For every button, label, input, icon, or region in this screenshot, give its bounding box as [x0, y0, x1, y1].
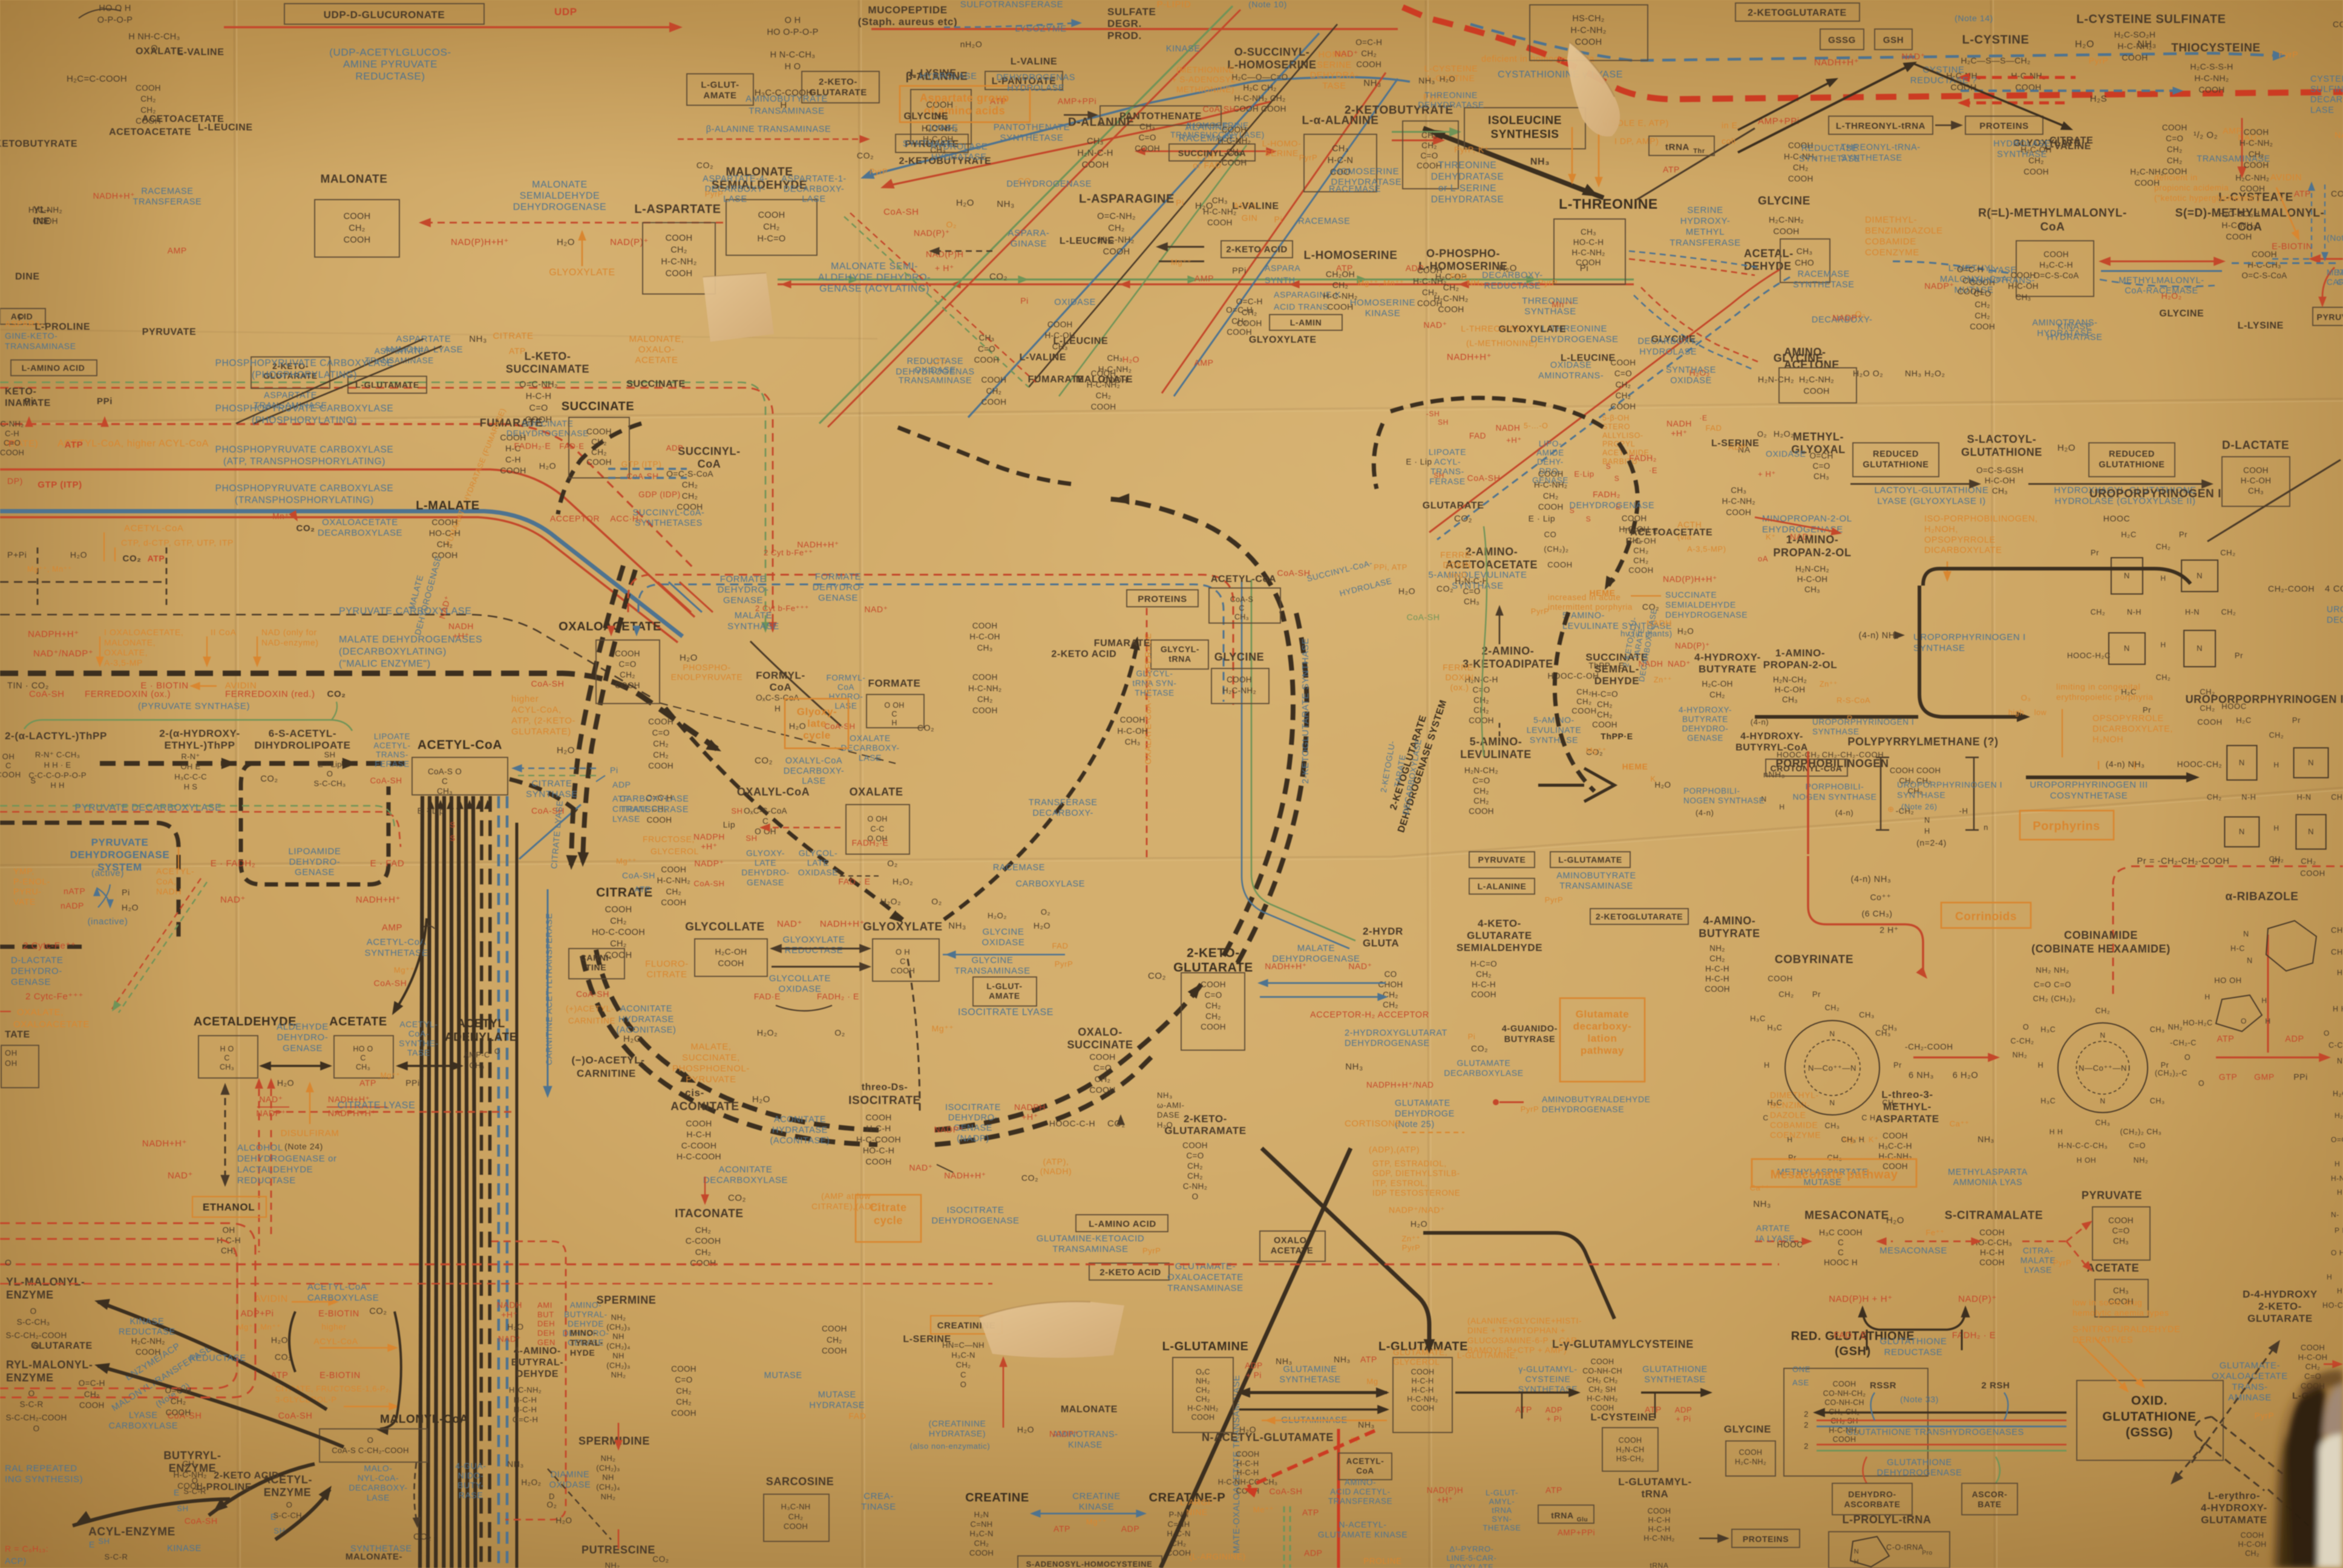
svg-text:OXALATE: OXALATE: [136, 46, 183, 56]
svg-text:H₂O: H₂O: [1440, 74, 1455, 83]
svg-text:NAD⁺: NAD⁺: [1668, 659, 1691, 668]
svg-text:ASPARA-GINASE: ASPARA-GINASE: [1008, 228, 1050, 249]
svg-text:H₂O: H₂O: [623, 1034, 641, 1044]
svg-text:H₂C: H₂C: [2121, 530, 2137, 539]
svg-text:H₂O: H₂O: [1017, 1425, 1034, 1434]
svg-text:O: O: [2324, 1029, 2330, 1037]
svg-text:2 Cytc-Fe⁺⁺: 2 Cytc-Fe⁺⁺: [23, 941, 76, 951]
svg-text:NH₂: NH₂: [2168, 1023, 2183, 1031]
svg-text:SH: SH: [731, 806, 742, 815]
svg-text:+ H⁺: + H⁺: [935, 263, 954, 273]
svg-text:higher: higher: [321, 1322, 346, 1331]
svg-text:ATP: ATP: [148, 554, 165, 563]
svg-text:ADP+ Pi: ADP+ Pi: [1675, 1405, 1693, 1423]
svg-text:Pr: Pr: [2143, 705, 2151, 714]
svg-text:DECARBOXY-HYDROLASE: DECARBOXY-HYDROLASE: [1637, 336, 1699, 356]
svg-text:CITRATE: CITRATE: [493, 331, 533, 341]
svg-text:H₃C: H₃C: [1768, 1099, 1783, 1107]
svg-text:limiting in congenitalerythrop: limiting in congenitalerythropoietic por…: [2056, 682, 2154, 702]
svg-text:Mg: Mg: [1366, 1377, 1378, 1386]
svg-text:COOH: COOH: [2300, 869, 2325, 878]
svg-text:CH₃: CH₃: [2331, 926, 2343, 935]
svg-text:RACEMASESYNTHETASE: RACEMASESYNTHETASE: [1793, 270, 1855, 290]
svg-text:S: S: [30, 776, 36, 785]
svg-text:(4-n): (4-n): [1696, 808, 1714, 817]
svg-text:2: 2: [1804, 1420, 1809, 1429]
svg-text:DEHYDROGENASHYDROLASE: DEHYDROGENASHYDROLASE: [997, 73, 1075, 93]
svg-text:6-S-ACETYL-DIHYDROLIPOATE: 6-S-ACETYL-DIHYDROLIPOATE: [254, 728, 350, 751]
svg-text:NADP⁺: NADP⁺: [1832, 313, 1862, 322]
svg-text:CH₃: CH₃: [1883, 1099, 1898, 1107]
svg-text:cis-: cis-: [685, 1087, 704, 1099]
svg-text:RACEMASE: RACEMASE: [1298, 217, 1350, 226]
svg-text:-CH₂-COOH: -CH₂-COOH: [1905, 1042, 1953, 1051]
svg-text:Pi: Pi: [122, 887, 130, 897]
svg-text:CH₂: CH₂: [2156, 673, 2171, 682]
svg-text:NH₃: NH₃: [469, 334, 487, 344]
svg-text:L-ALANINE: L-ALANINE: [1478, 881, 1527, 891]
svg-text:THREONINEDEHYDRATASE: THREONINEDEHYDRATASE: [1418, 90, 1484, 109]
svg-text:FAD: FAD: [1705, 423, 1722, 433]
svg-text:RACEMASE: RACEMASE: [1329, 185, 1381, 194]
svg-text:H₂O: H₂O: [2057, 443, 2076, 453]
svg-text:(CREATININEHYDRATASE): (CREATININEHYDRATASE): [928, 1419, 986, 1439]
svg-text:high: high: [2008, 708, 2024, 717]
svg-text:oA: oA: [1758, 554, 1768, 563]
svg-text:CO₂: CO₂: [755, 756, 773, 766]
svg-text:METHYLASPARTAAMMONIA LYAS: METHYLASPARTAAMMONIA LYAS: [1948, 1168, 2028, 1187]
svg-text:GLYOXYLATE: GLYOXYLATE: [1249, 335, 1317, 345]
svg-text:CO₂: CO₂: [297, 523, 315, 534]
svg-text:S-ADENOSYL-HOMOCYSTEINE: S-ADENOSYL-HOMOCYSTEINE: [1026, 1560, 1153, 1568]
svg-text:tRNA: tRNA: [1665, 142, 1689, 152]
svg-text:MALONYL-CoA: MALONYL-CoA: [380, 1413, 468, 1426]
svg-text:CREATINE: CREATINE: [965, 1491, 1029, 1504]
svg-text:Mg⁺⁺,Mn⁺⁺: Mg⁺⁺,Mn⁺⁺: [237, 1322, 281, 1331]
svg-text:CoA-SH: CoA-SH: [1407, 612, 1440, 622]
svg-text:FUMARATE: FUMARATE: [1094, 638, 1150, 648]
svg-text:L-GLUTAMATE: L-GLUTAMATE: [355, 380, 419, 390]
svg-text:FORMATEDEHYDRO-GENASE: FORMATEDEHYDRO-GENASE: [813, 572, 864, 603]
svg-text:ATP: ATP: [2217, 1034, 2235, 1044]
svg-text:CARNITINE: CARNITINE: [568, 1016, 615, 1025]
svg-text:H H₂C: H H₂C: [2333, 1005, 2343, 1013]
svg-text:(CH₂)₂-C: (CH₂)₂-C: [2155, 1069, 2187, 1077]
svg-text:FRUCTOSE,: FRUCTOSE,: [643, 834, 695, 844]
svg-text:(Note 24): (Note 24): [284, 1142, 323, 1151]
svg-text:L-AMINO ACID: L-AMINO ACID: [22, 363, 85, 373]
svg-text:NAD(P)H+H⁺: NAD(P)H+H⁺: [451, 237, 509, 247]
svg-text:ACONITATE: ACONITATE: [670, 1100, 739, 1113]
svg-text:NH₂ NH₂: NH₂ NH₂: [2036, 965, 2069, 975]
svg-text:LIPOAMIDEDEHYDRO-GENASE: LIPOAMIDEDEHYDRO-GENASE: [288, 846, 341, 878]
svg-text:SH: SH: [1438, 418, 1449, 426]
svg-text:-H: -H: [1959, 806, 1968, 815]
svg-text:SARCOSINE: SARCOSINE: [766, 1475, 834, 1488]
svg-text:2-KETOGLUTARATE SYNTHASE: 2-KETOGLUTARATE SYNTHASE: [1300, 638, 1311, 783]
svg-text:PYRUVATE: PYRUVATE: [1478, 855, 1526, 864]
svg-text:CO₂: CO₂: [369, 1307, 387, 1316]
svg-text:Zn⁺⁺: Zn⁺⁺: [1820, 680, 1838, 688]
svg-text:2 Cyt b-Fe⁺⁺: 2 Cyt b-Fe⁺⁺: [764, 548, 813, 557]
svg-text:Corrinoids: Corrinoids: [1955, 910, 2017, 923]
svg-text:NADH+H⁺: NADH+H⁺: [142, 1138, 187, 1149]
svg-text:OXALOACETATEDECARBOXYLASE: OXALOACETATEDECARBOXYLASE: [318, 517, 402, 538]
svg-text:in E.: in E.: [1722, 120, 1740, 130]
svg-text:KINASE: KINASE: [167, 1544, 202, 1553]
svg-text:COOH: COOH: [2197, 717, 2222, 727]
svg-text:2 RSH: 2 RSH: [1981, 1380, 2010, 1391]
svg-text:ATP: ATP: [634, 884, 651, 894]
svg-text:HEME: HEME: [1622, 762, 1648, 771]
svg-text:SYNTHASEOXIDASE: SYNTHASEOXIDASE: [1666, 365, 1716, 385]
svg-text:NADH+H⁺: NADH+H⁺: [356, 895, 401, 905]
svg-text:UDP: UDP: [554, 6, 577, 18]
svg-text:-CH₂-C: -CH₂-C: [2170, 1039, 2197, 1047]
svg-text:CROTONYL-CoA: CROTONYL-CoA: [1771, 763, 1843, 773]
svg-text:GLUTATHIONEDEHYDROGENASE: GLUTATHIONEDEHYDROGENASE: [1877, 1458, 1962, 1478]
svg-text:FAD: FAD: [1052, 941, 1068, 950]
svg-text:Pr: Pr: [2179, 530, 2187, 539]
svg-text:NAD⁺: NAD⁺: [909, 1163, 932, 1172]
svg-text:ISOLEUCINESYNTHESIS: ISOLEUCINESYNTHESIS: [1488, 114, 1562, 141]
svg-text:L-LEUCINE: L-LEUCINE: [1561, 353, 1616, 363]
svg-text:(n=2-4): (n=2-4): [1916, 838, 1947, 848]
svg-text:GLUTAMATE-OXALOACETATETRANSAMI: GLUTAMATE-OXALOACETATETRANSAMINASE: [1167, 1261, 1244, 1293]
svg-text:N—Co⁺⁺—N: N—Co⁺⁺—N: [1808, 1063, 1856, 1073]
svg-text:Fe⁺⁺: Fe⁺⁺: [1925, 1228, 1944, 1237]
svg-text:CH₃: CH₃: [1825, 1122, 1840, 1130]
svg-text:REDUCTASE: REDUCTASE: [189, 1353, 246, 1363]
svg-text:FORMATE: FORMATE: [868, 678, 921, 689]
svg-text:NADPH+H⁺: NADPH+H⁺: [28, 629, 79, 639]
svg-text:ADP+ Pi: ADP+ Pi: [1245, 1361, 1263, 1380]
svg-text:Pi: Pi: [1274, 214, 1283, 224]
svg-text:(Note 33): (Note 33): [1900, 1394, 1939, 1404]
svg-text:O: O: [2184, 1053, 2191, 1062]
svg-text:L-VALINE: L-VALINE: [177, 47, 224, 57]
svg-text:DEHYDRO-ASCORBATE: DEHYDRO-ASCORBATE: [1844, 1489, 1900, 1509]
svg-text:N: N: [2197, 571, 2203, 580]
svg-text:KINASE: KINASE: [1166, 44, 1201, 54]
svg-text:(ATP),(NADH): (ATP),(NADH): [1040, 1157, 1072, 1176]
svg-text:E·Lip: E·Lip: [1574, 469, 1594, 479]
svg-text:4-GUA-NIDO-BUTY-RASE: 4-GUA-NIDO-BUTY-RASE: [455, 1461, 486, 1500]
svg-text:CH₃: CH₃: [1859, 1010, 1875, 1019]
svg-text:H₂C: H₂C: [2236, 716, 2252, 725]
svg-text:GLYCOLLATE: GLYCOLLATE: [685, 921, 765, 933]
svg-text:(Note 15): (Note 15): [2327, 233, 2343, 243]
svg-text:RSSR: RSSR: [1870, 1380, 1896, 1391]
svg-text:PyrP: PyrP: [2255, 1411, 2275, 1420]
svg-text:A-3,5-MP): A-3,5-MP): [1687, 544, 1726, 554]
svg-text:C-O-tRNA: C-O-tRNA: [1886, 1543, 1924, 1552]
svg-text:ISOCITRATE LYASE: ISOCITRATE LYASE: [958, 1007, 1054, 1018]
svg-text:E · FADH₂: E · FADH₂: [211, 858, 256, 869]
svg-text:(+)ACETYL-: (+)ACETYL-: [566, 1004, 614, 1013]
svg-text:Me⁺⁺: Me⁺⁺: [1253, 1505, 1274, 1514]
svg-text:H₂O: H₂O: [1654, 780, 1671, 789]
svg-text:H₃C: H₃C: [1750, 1014, 1766, 1023]
svg-text:PYRUVATE: PYRUVATE: [2082, 1189, 2142, 1201]
svg-text:L-PROLINE: L-PROLINE: [196, 1482, 252, 1492]
svg-text:CoA-SH: CoA-SH: [374, 978, 407, 988]
svg-text:NH₃: NH₃: [1363, 78, 1381, 88]
svg-text:L-PROLINE: L-PROLINE: [35, 322, 91, 332]
svg-text:HOOC: HOOC: [2221, 702, 2246, 711]
svg-text:PyrP: PyrP: [1531, 607, 1550, 616]
svg-text:PyrP: PyrP: [1545, 895, 1564, 904]
svg-text:O: O: [5, 1258, 12, 1267]
svg-text:CH₃: CH₃: [2150, 1097, 2165, 1105]
svg-text:COOH: COOH: [1547, 560, 1572, 569]
svg-text:N: N: [2308, 758, 2314, 767]
svg-text:2: 2: [1804, 1442, 1809, 1451]
svg-text:(4-n) NH₃: (4-n) NH₃: [2106, 759, 2145, 769]
svg-text:CoA-SH: CoA-SH: [531, 679, 565, 688]
svg-text:H H: H H: [2335, 1160, 2343, 1168]
svg-text:HO-H₂C: HO-H₂C: [2183, 1019, 2212, 1027]
svg-text:AMP: AMP: [1194, 358, 1213, 367]
svg-text:N: N: [2308, 827, 2314, 836]
svg-text:CoA-SH: CoA-SH: [1467, 473, 1501, 483]
svg-text:Zn⁺⁺PyrP: Zn⁺⁺PyrP: [1401, 1234, 1420, 1252]
svg-text:L-VALINE: L-VALINE: [1232, 201, 1279, 211]
svg-text:2 Cytc-Fe⁺⁺⁺: 2 Cytc-Fe⁺⁺⁺: [25, 991, 84, 1002]
svg-text:ATP: ATP: [359, 1078, 376, 1088]
svg-text:AMP: AMP: [168, 246, 187, 255]
svg-text:CH₂: CH₂: [1825, 1004, 1840, 1012]
svg-text:SUCCINATE: SUCCINATE: [562, 400, 635, 413]
svg-text:GTP: GTP: [2219, 1072, 2238, 1082]
svg-text:FERREDOXIN (ox.): FERREDOXIN (ox.): [85, 689, 171, 699]
svg-text:CO₂: CO₂: [1471, 1044, 1488, 1053]
svg-text:GLUTAMINESYNTHETASE: GLUTAMINESYNTHETASE: [1279, 1365, 1341, 1385]
svg-text:MALONATE: MALONATE: [1061, 1405, 1118, 1415]
svg-text:PyrP, K⁺: PyrP, K⁺: [1454, 145, 1489, 154]
svg-text:ThPP·E: ThPP·E: [1601, 731, 1633, 741]
svg-text:CH₂: CH₂: [2207, 793, 2222, 802]
svg-text:H₂C=C-COOH: H₂C=C-COOH: [67, 74, 127, 84]
svg-text:S: S: [1586, 515, 1591, 523]
svg-text:Ca⁺⁺: Ca⁺⁺: [1750, 1183, 1770, 1192]
svg-text:CoA-SH: CoA-SH: [1203, 104, 1236, 114]
svg-text:E · Lip: E · Lip: [418, 806, 445, 815]
svg-text:CoA-SH: CoA-SH: [622, 871, 655, 880]
svg-text:2-(α-LACTYL-)ThPP: 2-(α-LACTYL-)ThPP: [5, 730, 107, 742]
svg-text:MALATESYNTHASE: MALATESYNTHASE: [727, 610, 779, 632]
svg-text:5-…-O: 5-…-O: [1524, 422, 1548, 430]
svg-text:HYDROLASEHYDRATASE: HYDROLASEHYDRATASE: [930, 142, 988, 162]
svg-text:ADP: ADP: [1121, 1524, 1140, 1534]
svg-text:GLUTAMATE,GLYCEROL: GLUTAMATE,GLYCEROL: [1393, 1348, 1447, 1367]
svg-text:C=O C=O: C=O C=O: [2034, 980, 2071, 989]
svg-text:GTP (ITP): GTP (ITP): [38, 480, 82, 490]
svg-text:CO: CO: [2331, 189, 2343, 198]
svg-text:DISULFIRAM: DISULFIRAM: [281, 1128, 339, 1138]
svg-text:CH₂: CH₂: [2331, 793, 2343, 802]
svg-text:CITRA-MALATELYASE: CITRA-MALATELYASE: [2020, 1246, 2056, 1275]
svg-text:NADPH+H⁺/NAD: NADPH+H⁺/NAD: [1366, 1080, 1434, 1089]
svg-text:H₃C: H₃C: [2337, 969, 2343, 977]
svg-text:H₂O: H₂O: [271, 1335, 288, 1345]
svg-text:COOHH₂N-CHHS-CH₂: COOHH₂N-CHHS-CH₂: [1616, 1436, 1645, 1463]
svg-text:L-THREONYL-tRNA: L-THREONYL-tRNA: [1836, 121, 1925, 131]
svg-text:H₃C: H₃C: [2040, 1025, 2056, 1034]
svg-text:H₂O: H₂O: [555, 1516, 572, 1525]
svg-text:(Note 10): (Note 10): [1248, 0, 1287, 9]
svg-text:Pi: Pi: [1020, 296, 1029, 305]
svg-text:Citratecycle: Citratecycle: [870, 1201, 906, 1227]
svg-text:NADP⁺: NADP⁺: [1049, 1429, 1079, 1439]
svg-text:P-LIPID: P-LIPID: [1157, 0, 1191, 10]
svg-text:HYDROLASE: HYDROLASE: [920, 72, 977, 82]
svg-text:FAD·E: FAD·E: [559, 442, 584, 451]
svg-text:I DP, AMP): I DP, AMP): [1614, 136, 1659, 146]
svg-text:OXALATE-CoA-TRANSFERASE: OXALATE-CoA-TRANSFERASE: [1143, 633, 1153, 764]
svg-text:L-CYSTINE: L-CYSTINE: [1962, 33, 2030, 47]
svg-text:R = C₆H₁₃:: R = C₆H₁₃:: [5, 1544, 48, 1553]
svg-text:H₃C: H₃C: [1768, 1024, 1783, 1032]
svg-text:NH₃: NH₃: [1358, 1420, 1375, 1429]
svg-text:NADH+H⁺: NADH+H⁺: [797, 540, 839, 549]
svg-text:OXIDASE: OXIDASE: [1766, 449, 1806, 459]
svg-text:OXALYL-CoA: OXALYL-CoA: [737, 786, 810, 798]
svg-text:Thr: Thr: [1693, 148, 1705, 155]
svg-text:ASPARA: ASPARA: [1265, 263, 1300, 273]
svg-text:CH₃: CH₃: [2096, 1119, 2111, 1127]
svg-text:O: O: [2241, 1017, 2247, 1025]
svg-text:SPERMIDINE: SPERMIDINE: [578, 1435, 650, 1447]
svg-text:H₂O₂: H₂O₂: [2161, 291, 2182, 301]
svg-text:GLYCINE: GLYCINE: [1774, 352, 1824, 364]
svg-text:(CH₂)₂ CH₃: (CH₂)₂ CH₃: [2120, 1128, 2162, 1136]
svg-text:CO₂: CO₂: [327, 689, 346, 699]
svg-text:L-SERINE: L-SERINE: [903, 1334, 951, 1345]
svg-text:MALONATE: MALONATE: [320, 173, 387, 186]
svg-text:PROTEINS: PROTEINS: [1743, 1534, 1789, 1544]
svg-text:GLUTATHIONESYNTHETASE: GLUTATHIONESYNTHETASE: [1642, 1365, 1708, 1385]
svg-text:5-AMINO-LEVULINATESYNTHASE: 5-AMINO-LEVULINATESYNTHASE: [1527, 715, 1582, 745]
svg-text:H₂N-CH₂: H₂N-CH₂: [1758, 374, 1794, 384]
svg-text:CO₂: CO₂: [696, 160, 713, 170]
svg-text:NAD⁺: NAD⁺: [864, 604, 888, 614]
svg-text:PYRUVATE: PYRUVATE: [2317, 312, 2343, 322]
svg-text:GLYCINE: GLYCINE: [1758, 195, 1810, 207]
svg-text:H: H: [2265, 1017, 2270, 1025]
svg-text:L-THREONINE: L-THREONINE: [1559, 196, 1658, 212]
svg-text:2-KETOGLUTARATE: 2-KETOGLUTARATE: [1748, 8, 1847, 18]
svg-text:H₂O: H₂O: [70, 550, 87, 560]
svg-text:ATP: ATP: [1054, 1524, 1070, 1534]
svg-text:TATE: TATE: [5, 1030, 30, 1040]
svg-text:O₂: O₂: [1041, 907, 1050, 916]
svg-text:CoA-SH: CoA-SH: [1270, 1486, 1303, 1496]
svg-text:ASE: ASE: [1792, 1378, 1809, 1387]
svg-text:NADP⁺: NADP⁺: [694, 858, 724, 868]
svg-text:L-erythro-4-HYDROXY-GLUTAMATE: L-erythro-4-HYDROXY-GLUTAMATE: [2201, 1490, 2267, 1526]
svg-text:SPERMINE: SPERMINE: [597, 1294, 657, 1306]
svg-text:RAL REPEATEDING SYNTHESIS): RAL REPEATEDING SYNTHESIS): [5, 1463, 83, 1485]
svg-text:L-PROLYL-tRNA: L-PROLYL-tRNA: [1842, 1514, 1931, 1526]
svg-text:NAD(P)⁺: NAD(P)⁺: [914, 228, 950, 238]
svg-text:2-KETO ACID: 2-KETO ACID: [1226, 244, 1288, 255]
svg-text:GDP (IDP): GDP (IDP): [638, 490, 681, 499]
svg-text:NH₃: NH₃: [997, 199, 1015, 209]
svg-text:n: n: [1984, 823, 1988, 832]
svg-text:GLYCEROL: GLYCEROL: [650, 846, 699, 856]
svg-text:FAD: FAD: [1450, 272, 1467, 281]
svg-text:2-KETO ACID: 2-KETO ACID: [214, 1471, 279, 1481]
svg-text:CO₂: CO₂: [1148, 971, 1166, 981]
svg-text:ACETATE: ACETATE: [2087, 1262, 2140, 1274]
svg-text:LIPOATEACETYL-TRANS-FERASE: LIPOATEACETYL-TRANS-FERASE: [373, 732, 410, 768]
svg-text:Pr: Pr: [2161, 1061, 2169, 1070]
svg-text:FERREDOXIN (red.): FERREDOXIN (red.): [225, 689, 315, 699]
svg-text:nADP: nADP: [61, 901, 84, 910]
svg-text:ACP): ACP): [5, 1556, 27, 1566]
svg-text:PyrP: PyrP: [1521, 1105, 1539, 1114]
svg-text:E-BIOTIN: E-BIOTIN: [318, 1309, 359, 1319]
svg-text:HOOC-H₂C: HOOC-H₂C: [2067, 651, 2111, 660]
svg-text:CO₂: CO₂: [989, 272, 1008, 282]
svg-text:SYNTHETASE: SYNTHETASE: [350, 1544, 412, 1553]
svg-text:NH₃: NH₃: [1276, 1356, 1293, 1366]
svg-text:ACETOACETATE: ACETOACETATE: [109, 127, 191, 137]
svg-text:H₂C H₃C C: H₂C H₃C C: [2335, 1111, 2343, 1120]
svg-text:NADP⁺/NAD⁺: NADP⁺/NAD⁺: [1389, 1205, 1445, 1215]
svg-text:K⁺: K⁺: [1766, 532, 1776, 541]
svg-text:UROPORPYRINOGEN I: UROPORPYRINOGEN I: [2089, 488, 2221, 500]
svg-text:H₂O₂: H₂O₂: [1774, 429, 1794, 439]
svg-text:Ca⁺⁺: Ca⁺⁺: [1950, 1119, 1970, 1128]
svg-text:L-CYSTEINE: L-CYSTEINE: [1590, 1411, 1655, 1423]
svg-text:PPi: PPi: [97, 396, 113, 407]
svg-text:H: H: [1924, 827, 1930, 835]
svg-text:NAD⁺: NAD⁺: [777, 919, 802, 929]
svg-text:HOOC: HOOC: [2103, 514, 2130, 523]
svg-text:Mg⁺⁺, Mn⁺⁺: Mg⁺⁺, Mn⁺⁺: [1358, 278, 1404, 287]
svg-text:TRANSAMINASE: TRANSAMINASE: [749, 106, 825, 116]
svg-text:N: N: [2124, 571, 2130, 580]
svg-text:CARNITINE: CARNITINE: [577, 1068, 636, 1079]
svg-text:ThPP · E: ThPP · E: [1588, 661, 1624, 670]
svg-text:GIN: GIN: [1242, 213, 1258, 223]
svg-text:NAD⁺: NAD⁺: [498, 1334, 521, 1344]
svg-text:GLYCINE: GLYCINE: [1214, 651, 1265, 663]
svg-text:H: H: [2261, 996, 2267, 1005]
svg-text:PyrP: PyrP: [705, 189, 724, 198]
svg-text:L-LEUCINE: L-LEUCINE: [198, 123, 253, 133]
svg-text:NH₃ H₂O₂: NH₃ H₂O₂: [1905, 368, 1945, 378]
svg-text:Porphyrins: Porphyrins: [2033, 820, 2100, 833]
svg-text:D-LACTATE: D-LACTATE: [2222, 439, 2289, 452]
svg-text:N: N: [2100, 1031, 2105, 1040]
svg-text:5-AMINO-LEVULINATE: 5-AMINO-LEVULINATE: [1460, 736, 1532, 760]
svg-text:HOOC: HOOC: [1777, 1240, 1803, 1249]
svg-text:TRANSFERASEDECARBOXY-: TRANSFERASEDECARBOXY-: [1029, 798, 1098, 818]
svg-text:coli: coli: [1722, 136, 1735, 146]
svg-text:PPi: PPi: [1232, 266, 1247, 275]
svg-text:N-: N-: [2331, 1210, 2339, 1219]
svg-text:HS-CH₂H-C-NH₂COOH: HS-CH₂H-C-NH₂COOH: [1570, 14, 1606, 47]
svg-text:H: H: [2038, 1061, 2044, 1070]
svg-text:PYRUVATE CARBOXYLASE: PYRUVATE CARBOXYLASE: [339, 606, 471, 616]
svg-text:L-GLUT-AMATE: L-GLUT-AMATE: [701, 80, 739, 100]
svg-text:CoA-SH: CoA-SH: [626, 472, 658, 481]
svg-text:HO OH: HO OH: [2214, 976, 2242, 985]
svg-text:CH₂: CH₂: [2301, 857, 2316, 866]
